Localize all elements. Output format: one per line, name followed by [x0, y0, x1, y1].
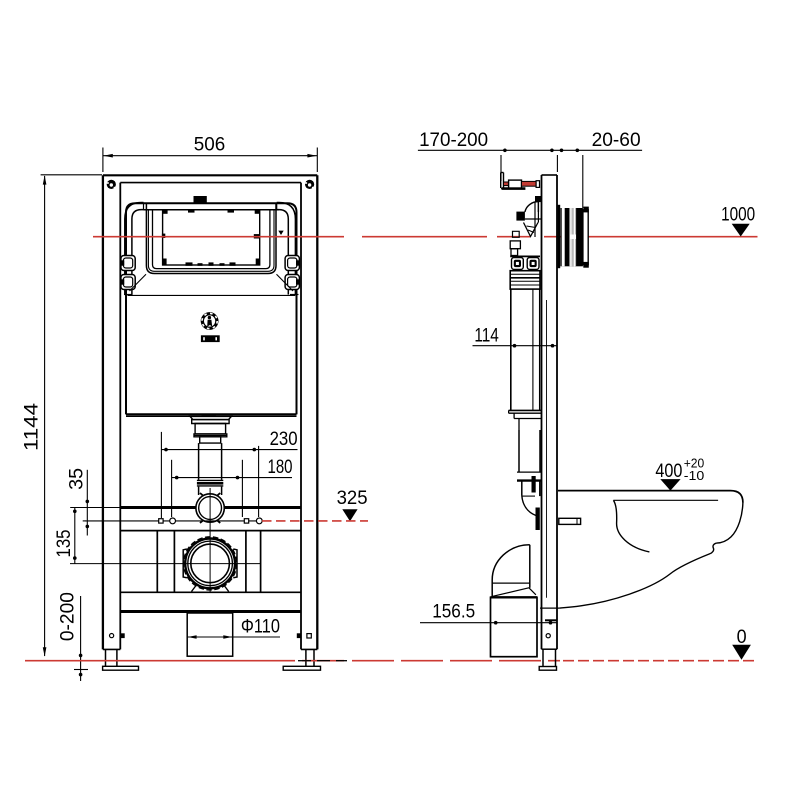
svg-text:1144: 1144 [21, 403, 43, 451]
svg-text:230: 230 [270, 428, 298, 450]
svg-text:35: 35 [65, 468, 87, 490]
svg-text:135: 135 [53, 529, 75, 557]
svg-text:180: 180 [268, 456, 293, 478]
svg-text:-10: -10 [684, 468, 705, 483]
svg-text:0-200: 0-200 [57, 592, 79, 641]
svg-text:506: 506 [194, 134, 226, 156]
svg-text:0: 0 [737, 626, 747, 648]
svg-text:156.5: 156.5 [432, 601, 475, 623]
svg-text:400: 400 [655, 460, 682, 482]
svg-text:1000: 1000 [721, 203, 755, 225]
svg-text:114: 114 [474, 324, 499, 346]
svg-text:Φ110: Φ110 [241, 615, 280, 637]
svg-text:170-200: 170-200 [419, 129, 488, 151]
svg-text:325: 325 [337, 487, 368, 509]
svg-text:20-60: 20-60 [592, 129, 641, 151]
